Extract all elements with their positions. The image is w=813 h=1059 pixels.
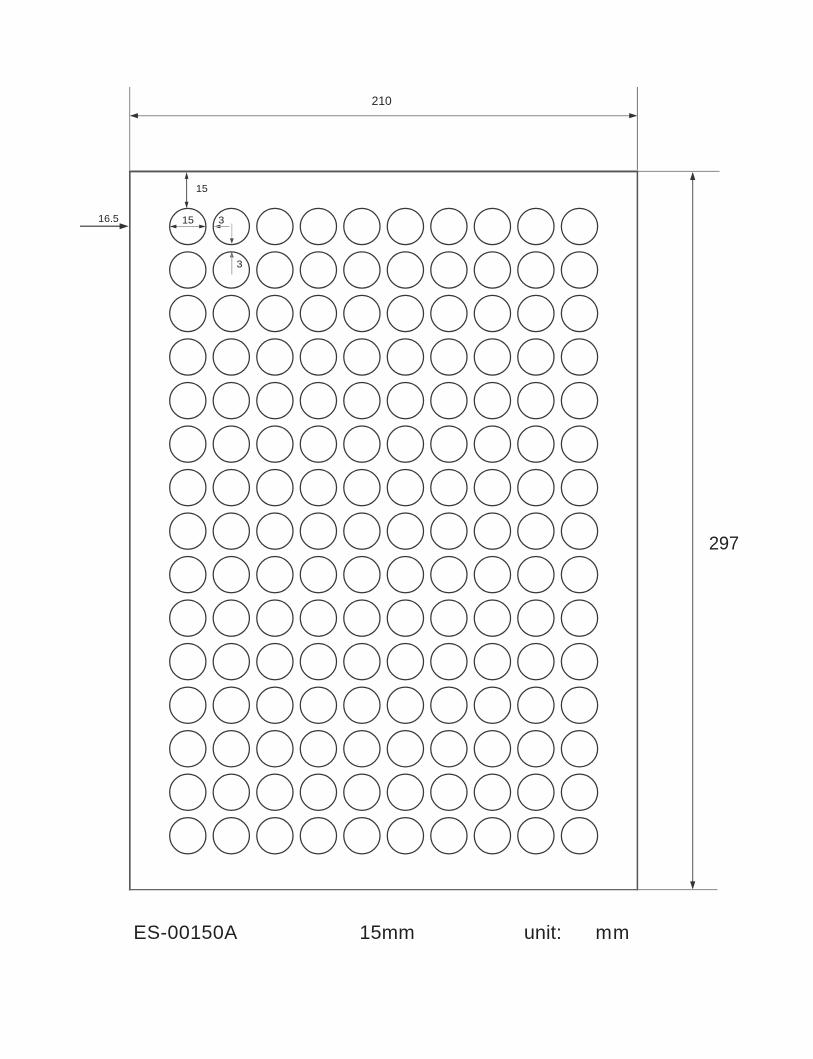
svg-text:15: 15 (182, 214, 194, 226)
svg-text:15: 15 (196, 183, 208, 195)
svg-text:15mm: 15mm (360, 922, 415, 944)
svg-text:297: 297 (709, 533, 739, 553)
svg-text:3: 3 (218, 214, 224, 226)
svg-text:210: 210 (372, 94, 392, 108)
svg-text:unit:: unit: (524, 922, 562, 944)
svg-text:3: 3 (237, 259, 243, 271)
svg-text:ES-00150A: ES-00150A (134, 922, 238, 944)
svg-text:mm: mm (596, 922, 631, 944)
svg-text:16.5: 16.5 (98, 213, 119, 225)
